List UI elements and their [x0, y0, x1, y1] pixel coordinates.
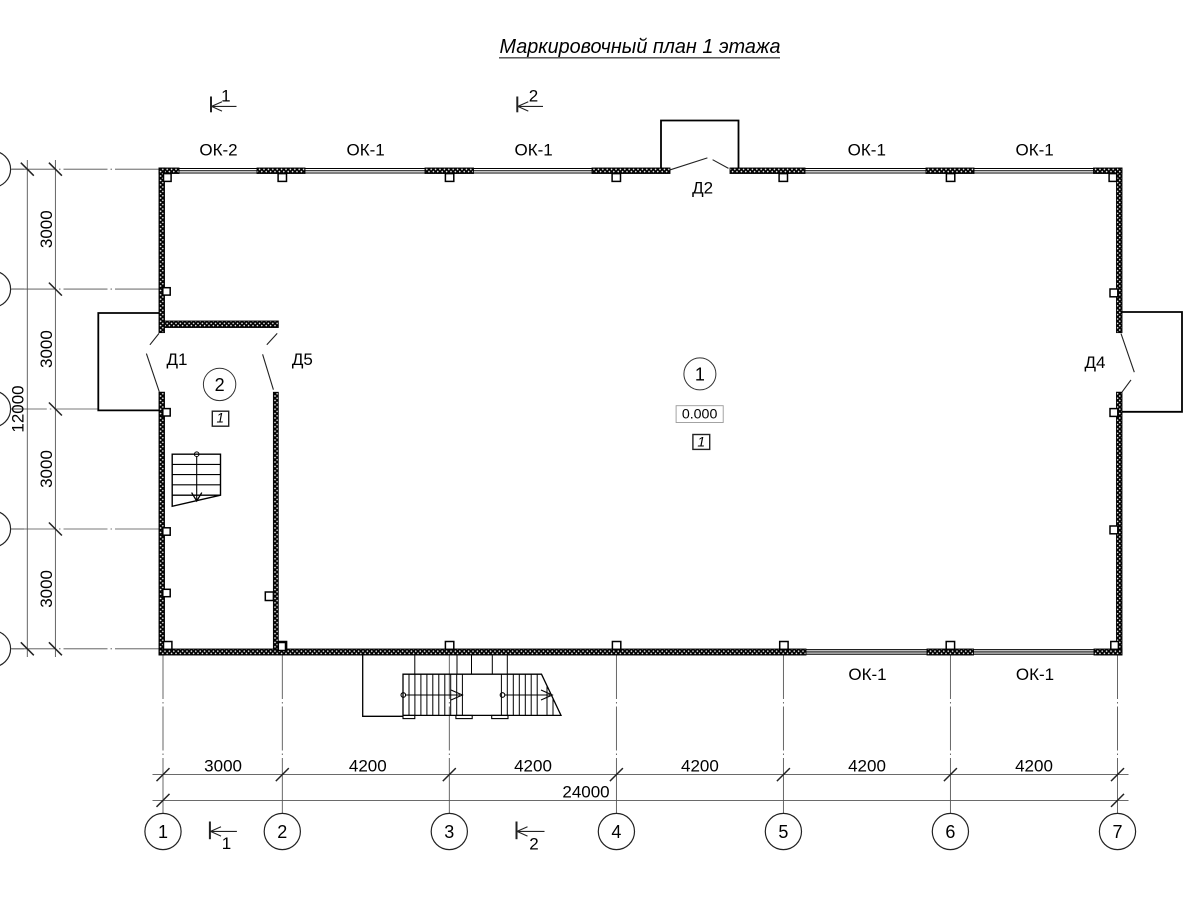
svg-text:7: 7	[1112, 822, 1122, 842]
svg-text:0.000: 0.000	[682, 407, 718, 423]
svg-text:1: 1	[158, 822, 168, 842]
svg-text:ОК-1: ОК-1	[1016, 665, 1054, 684]
svg-text:3: 3	[444, 822, 454, 842]
svg-text:ОК-2: ОК-2	[199, 140, 237, 159]
svg-text:1: 1	[697, 434, 705, 450]
svg-text:24000: 24000	[562, 783, 609, 802]
svg-text:12000: 12000	[9, 385, 28, 432]
svg-text:Д1: Д1	[167, 350, 188, 369]
svg-text:3000: 3000	[37, 330, 56, 368]
svg-text:4200: 4200	[349, 757, 387, 776]
svg-text:ОК-1: ОК-1	[848, 665, 886, 684]
svg-text:3000: 3000	[37, 450, 56, 488]
svg-text:ОК-1: ОК-1	[514, 140, 552, 159]
svg-text:Д5: Д5	[292, 350, 313, 369]
svg-text:4200: 4200	[848, 757, 886, 776]
svg-text:4200: 4200	[681, 757, 719, 776]
svg-text:4: 4	[611, 822, 621, 842]
svg-text:Маркировочный план 1 этажа: Маркировочный план 1 этажа	[500, 36, 781, 58]
svg-text:4200: 4200	[514, 757, 552, 776]
svg-text:Д4: Д4	[1085, 353, 1106, 372]
svg-text:1: 1	[695, 364, 705, 384]
svg-text:3000: 3000	[37, 570, 56, 608]
svg-text:3000: 3000	[204, 757, 242, 776]
svg-text:2: 2	[277, 822, 287, 842]
svg-text:1: 1	[222, 834, 231, 853]
svg-text:1: 1	[217, 411, 225, 426]
svg-text:Д2: Д2	[692, 179, 713, 198]
svg-text:2: 2	[215, 375, 225, 395]
svg-text:5: 5	[778, 822, 788, 842]
svg-text:1: 1	[221, 86, 230, 105]
svg-text:ОК-1: ОК-1	[848, 140, 886, 159]
svg-text:2: 2	[529, 86, 538, 105]
svg-text:3000: 3000	[37, 210, 56, 248]
svg-text:6: 6	[945, 822, 955, 842]
svg-text:ОК-1: ОК-1	[346, 140, 384, 159]
svg-text:2: 2	[529, 834, 538, 853]
svg-text:ОК-1: ОК-1	[1015, 140, 1053, 159]
svg-text:4200: 4200	[1015, 757, 1053, 776]
